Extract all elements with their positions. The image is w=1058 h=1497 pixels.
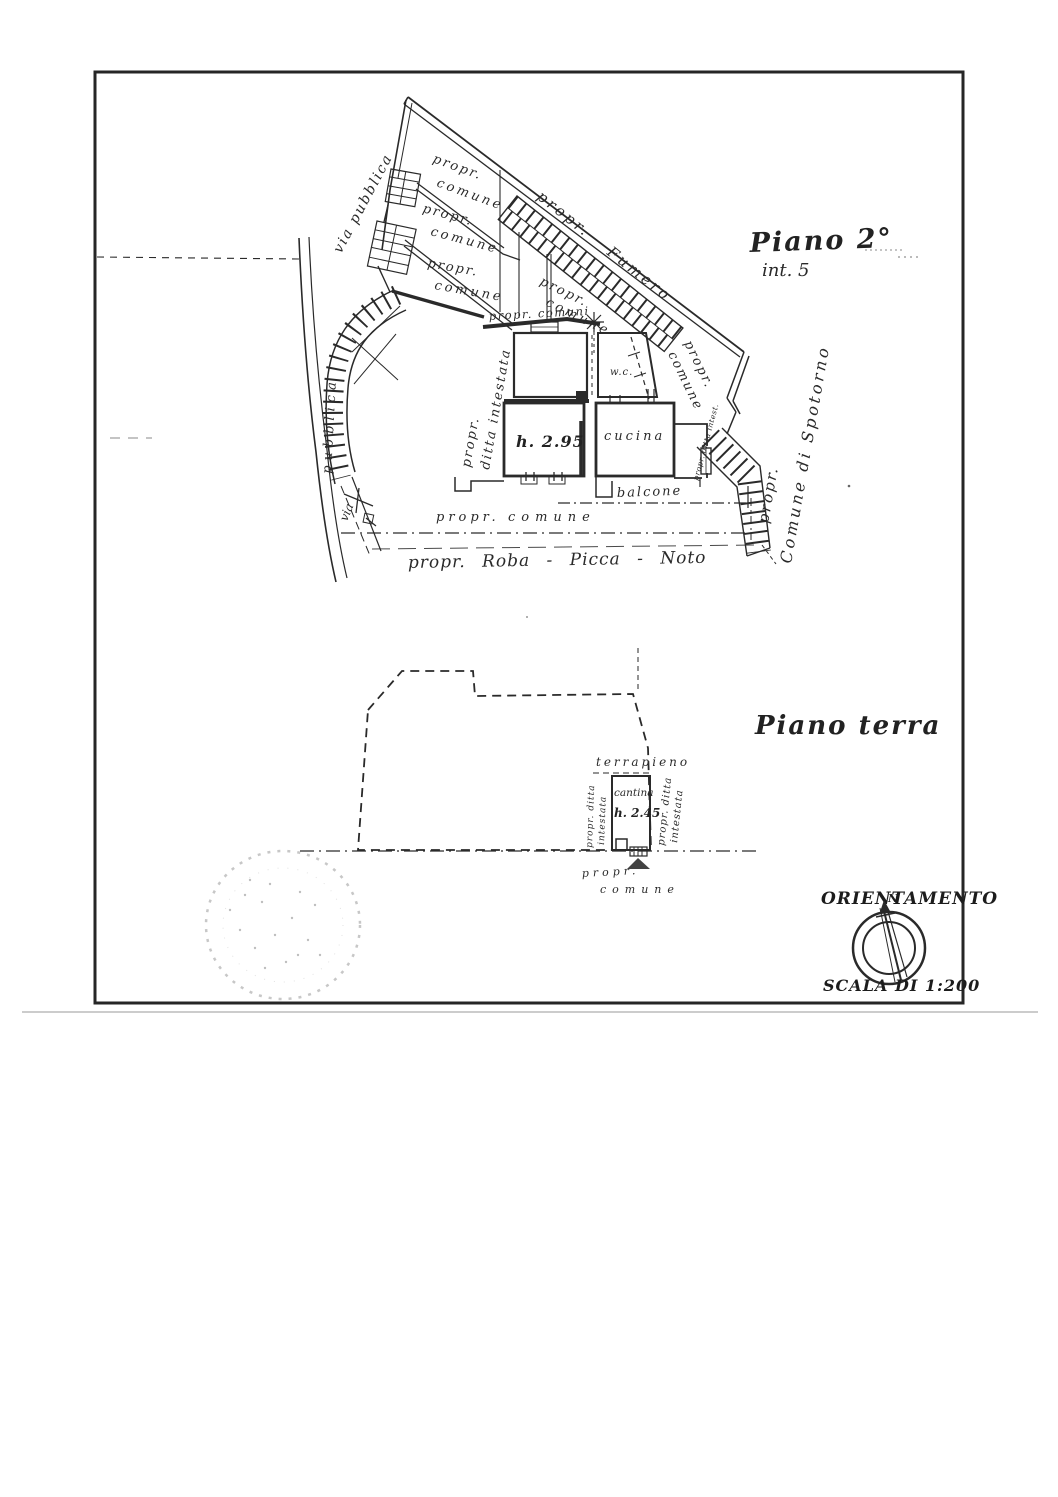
kitchen-label: cucina <box>604 429 665 444</box>
terra-title: Piano terra <box>754 711 941 741</box>
plan-drawing: Piano 2° int. 5 via pubblica pubblica vi… <box>0 0 1058 1497</box>
embankment-label: terrapieno <box>596 755 690 769</box>
sheet-frame <box>22 72 1038 1012</box>
scanned-plan-page: Piano 2° int. 5 via pubblica pubblica vi… <box>0 0 1058 1497</box>
bottom-owner-line1: propr. <box>436 510 500 525</box>
plan2-title: Piano 2° <box>748 223 893 259</box>
orientation-title: ORIENTAMENTO <box>821 889 998 909</box>
plan2-subtitle: int. 5 <box>762 260 809 281</box>
north-letter: N <box>887 892 899 905</box>
room-height-label: h. 2.95 <box>516 432 585 451</box>
terra-bottom-owner-2: comune <box>600 883 680 896</box>
balcony-label: balcone <box>617 484 683 501</box>
cellar-label: cantina <box>614 787 654 799</box>
wc-label: w.c. <box>610 367 633 378</box>
terra-owner-left-2: intestata <box>597 796 609 846</box>
bottom-owner-line2: comune <box>508 510 596 525</box>
scale-label: SCALA DI 1:200 <box>823 976 980 995</box>
cellar-height-label: h. 2.45 <box>614 806 660 820</box>
